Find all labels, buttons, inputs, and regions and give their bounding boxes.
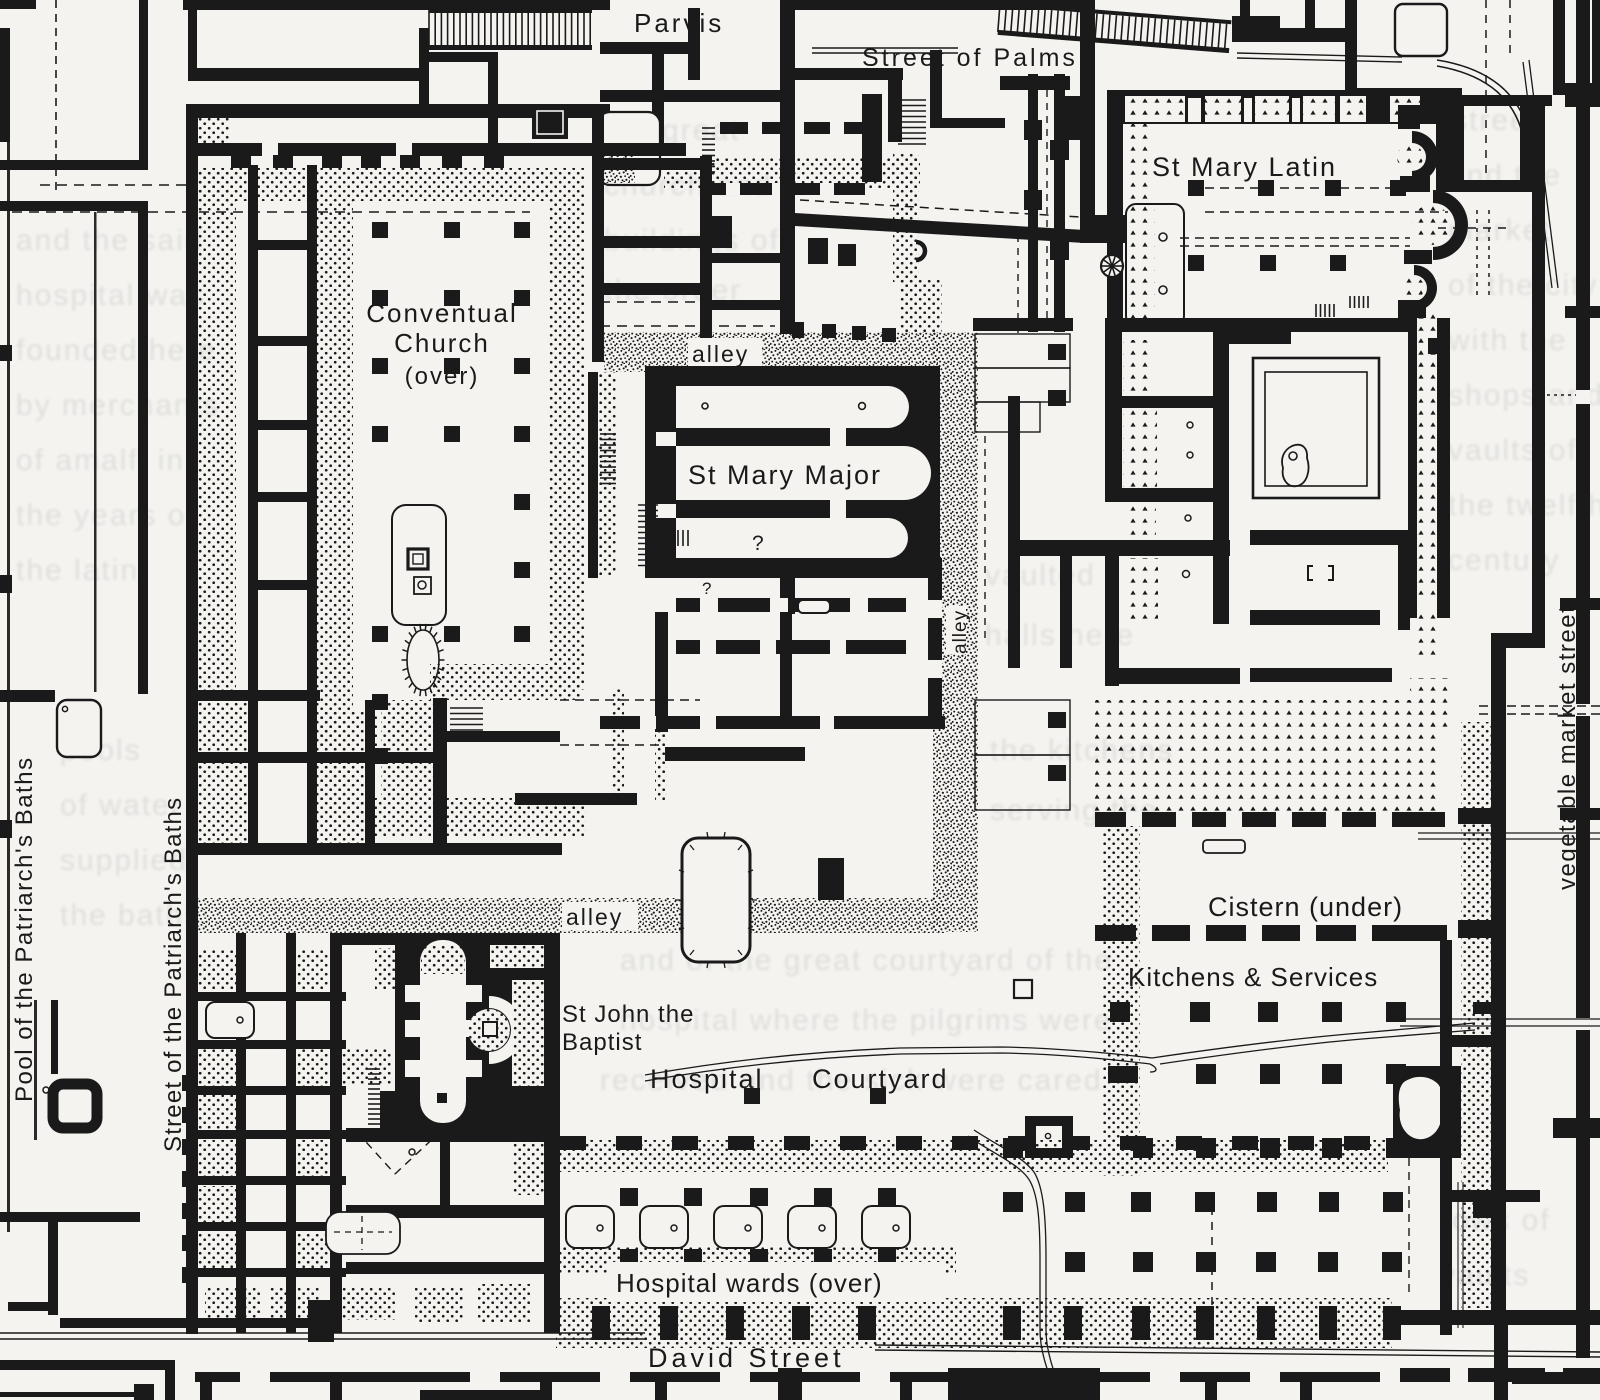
svg-text:Hospital: Hospital <box>650 1064 764 1094</box>
svg-text:with the: with the <box>1447 324 1567 357</box>
svg-text:of amalfi in: of amalfi in <box>16 444 185 477</box>
svg-text:Cistern (under): Cistern (under) <box>1208 892 1403 922</box>
svg-text:hospital was: hospital was <box>16 279 205 312</box>
svg-text:Street of the Patriarch's Bath: Street of the Patriarch's Baths <box>160 797 187 1152</box>
svg-text:St Mary Latin: St Mary Latin <box>1152 152 1337 182</box>
svg-text:vegetable market street: vegetable market street <box>1554 605 1581 890</box>
svg-text:alley: alley <box>950 610 971 654</box>
svg-text:alley: alley <box>566 904 623 930</box>
svg-text:vaulted: vaulted <box>985 559 1096 592</box>
svg-text:(over): (over) <box>405 363 480 390</box>
svg-text:alley: alley <box>692 341 749 367</box>
svg-text:Courtyard: Courtyard <box>812 1064 949 1094</box>
svg-text:of the city: of the city <box>1448 269 1598 302</box>
svg-text:the years of: the years of <box>16 499 197 532</box>
svg-text:?: ? <box>752 532 764 555</box>
svg-text:David Street: David Street <box>648 1343 845 1373</box>
svg-text:?: ? <box>702 579 711 598</box>
svg-text:the latin: the latin <box>16 554 139 587</box>
svg-text:Conventual: Conventual <box>366 298 518 328</box>
svg-text:Parvis: Parvis <box>634 8 724 38</box>
svg-text:Church: Church <box>394 328 490 358</box>
svg-text:vaults of: vaults of <box>1448 434 1578 467</box>
svg-text:and the said: and the said <box>16 224 203 257</box>
svg-text:Hospital wards (over): Hospital wards (over) <box>616 1268 883 1298</box>
svg-text:St John the: St John the <box>562 1001 694 1028</box>
svg-text:St Mary Major: St Mary Major <box>688 460 882 490</box>
svg-text:Pool of the Patriarch's Baths: Pool of the Patriarch's Baths <box>11 756 38 1102</box>
svg-text:Baptist: Baptist <box>562 1029 642 1056</box>
svg-text:Kitchens & Services: Kitchens & Services <box>1128 962 1378 992</box>
